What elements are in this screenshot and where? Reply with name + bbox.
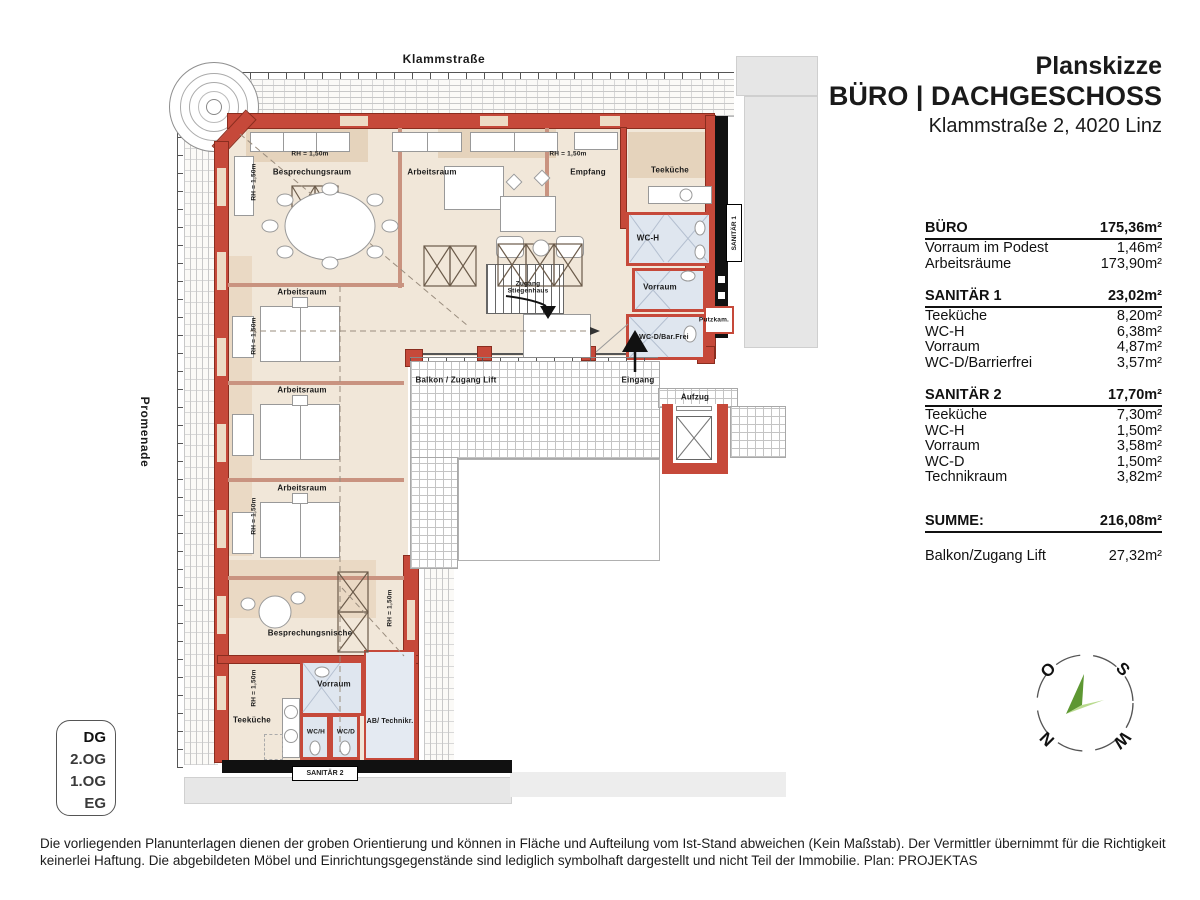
room-label-arbeitsraum-2: Arbeitsraum — [277, 385, 326, 394]
neighbor-building-right — [744, 96, 818, 348]
room-ab-technik — [364, 650, 416, 760]
desk-room3 — [260, 502, 340, 558]
area-row-label: SANITÄR 1 — [925, 289, 1002, 306]
window-left-4 — [217, 424, 226, 462]
area-table-row: WC-D 1,50m² — [925, 455, 1162, 471]
area-table-row: Arbeitsräume 173,90m² — [925, 257, 1162, 273]
area-row-value: 1,50m² — [1117, 424, 1162, 440]
sidewalk-bottom-right — [510, 772, 786, 797]
area-row-value: 8,20m² — [1117, 309, 1162, 325]
kitchen-counter-1 — [648, 186, 712, 204]
cabinet-row-3 — [470, 132, 558, 152]
window-left-7 — [217, 676, 226, 710]
area-row-label: WC-H — [925, 325, 964, 341]
page: SANITÄR 1 SANITÄR 2 — [0, 0, 1200, 900]
floor-selector-item[interactable]: 2.OG — [57, 749, 115, 771]
compass-letter-n: N — [1036, 728, 1058, 750]
counter-dashed — [264, 734, 283, 760]
page-subtitle: BÜRO | DACHGESCHOSS — [829, 81, 1162, 112]
floor-selector: DG 2.OG 1.OG EG — [56, 720, 116, 816]
disclaimer-line-1: Die vorliegenden Planunterlagen dienen d… — [40, 835, 1170, 852]
party-wall-bottom — [222, 760, 512, 773]
room-label-wch-2: WC/H — [307, 728, 325, 735]
area-row-label: Vorraum im Podest — [925, 241, 1048, 257]
area-table-row: SUMME: 216,08m² — [925, 514, 1162, 533]
area-row-value: 7,30m² — [1117, 408, 1162, 424]
area-row-label: WC-D — [925, 455, 964, 471]
partition-left-2 — [228, 381, 404, 385]
room-label-wcd-2: WC/D — [337, 728, 355, 735]
area-row-label: SUMME: — [925, 514, 984, 531]
room-wcd-2 — [330, 714, 360, 760]
floor-label: EG — [84, 795, 106, 812]
rh-label-left-3: RH = 1,50m — [250, 497, 257, 534]
room-label-teekueche-1: Teeküche — [651, 165, 689, 174]
desk-room2 — [260, 404, 340, 460]
site-boundary-left — [177, 120, 183, 768]
sanitaer2-tag: SANITÄR 2 — [292, 766, 358, 781]
podest-vorraum — [523, 314, 591, 358]
sofa-2 — [556, 236, 584, 258]
site-boundary-top — [196, 72, 734, 79]
window-top-2 — [480, 116, 508, 126]
room-label-besprechungsnische: Besprechungsnische — [268, 628, 353, 637]
promenade-label: Promenade — [137, 397, 151, 468]
cabinet-row-4 — [574, 132, 618, 150]
room-label-arbeitsraum-1: Arbeitsraum — [277, 287, 326, 296]
area-table-row: Vorraum 4,87m² — [925, 340, 1162, 356]
disclaimer-line-2: keinerlei Haftung. Die abgebildeten Möbe… — [40, 852, 1170, 869]
room-label-vorraum-2: Vorraum — [317, 679, 351, 688]
page-title: Planskizze — [829, 52, 1162, 81]
window-left-3 — [217, 338, 226, 376]
desk-room1 — [260, 306, 340, 362]
area-row-label: Arbeitsräume — [925, 257, 1011, 273]
room-label-vorraum-1: Vorraum — [643, 282, 677, 291]
room-label-arbeitsraum-top: Arbeitsraum — [407, 167, 456, 176]
area-row-value: 1,50m² — [1117, 455, 1162, 471]
cabinet-row-2 — [392, 132, 462, 152]
label-aufzug: Aufzug — [681, 392, 709, 401]
area-table-row: Vorraum im Podest 1,46m² — [925, 241, 1162, 257]
page-address: Klammstraße 2, 4020 Linz — [829, 115, 1162, 138]
floor-selector-item[interactable]: EG — [57, 793, 115, 815]
window-top-3 — [600, 116, 620, 126]
area-row-value: 175,36m² — [1100, 221, 1162, 238]
window-left-5 — [217, 510, 226, 548]
appliance-column — [282, 698, 300, 758]
title-block: Planskizze BÜRO | DACHGESCHOSS Klammstra… — [829, 52, 1162, 138]
cabinet-row-1 — [250, 132, 350, 152]
area-row-label: Vorraum — [925, 340, 980, 356]
room-label-wcd-barrierefrei: WC-D/Bar.Frei — [639, 334, 689, 342]
area-row-value: 17,70m² — [1108, 388, 1162, 405]
area-table-row: WC-H 6,38m² — [925, 325, 1162, 341]
sanitaer2-tag-text: SANITÄR 2 — [307, 770, 344, 777]
room-label-besprechungsraum: Besprechungsraum — [273, 167, 351, 176]
window-top-1 — [340, 116, 368, 126]
disclaimer: Die vorliegenden Planunterlagen dienen d… — [40, 835, 1170, 869]
balcony-side — [410, 457, 458, 569]
sidewalk-top — [196, 79, 734, 117]
area-row-label: Teeküche — [925, 309, 987, 325]
partition-left-3 — [228, 478, 404, 482]
area-table-row: WC-H 1,50m² — [925, 424, 1162, 440]
area-table-row: SANITÄR 2 17,70m² — [925, 388, 1162, 407]
area-table-row: Teeküche 7,30m² — [925, 408, 1162, 424]
area-table-row: Teeküche 8,20m² — [925, 309, 1162, 325]
area-table-row — [925, 371, 1162, 388]
window-right-bw — [407, 600, 415, 640]
label-balkon: Balkon / Zugang Lift — [416, 375, 497, 384]
area-row-label: WC-D/Barrierfrei — [925, 356, 1032, 372]
turret-center — [206, 99, 222, 115]
area-row-label: Teeküche — [925, 408, 987, 424]
area-row-value: 23,02m² — [1108, 289, 1162, 306]
area-row-value: 1,46m² — [1117, 241, 1162, 257]
sidewalk-right-wing — [424, 566, 454, 766]
area-table-row: Vorraum 3,58m² — [925, 439, 1162, 455]
room-label-ab-technik: AB/ Technikr. — [367, 718, 414, 726]
desk-empfang — [500, 196, 556, 232]
sidewalk-bottom — [184, 777, 512, 804]
floor-selector-item[interactable]: 1.OG — [57, 771, 115, 793]
compass-letter-o: O — [1037, 659, 1060, 682]
floor-label: DG — [84, 729, 107, 746]
wall-top — [228, 114, 714, 128]
room-wch-2 — [300, 714, 330, 760]
room-label-arbeitsraum-3: Arbeitsraum — [277, 483, 326, 492]
area-table-row: Balkon/Zugang Lift 27,32m² — [925, 549, 1162, 565]
room-label-teekueche-2: Teeküche — [233, 715, 271, 724]
room-label-wch-1: WC-H — [637, 233, 660, 242]
partition-left-1 — [228, 283, 404, 287]
area-table-row — [925, 486, 1162, 514]
partition-bespr-arbeits — [398, 128, 402, 288]
area-table-row: WC-D/Barrierfrei 3,57m² — [925, 356, 1162, 372]
sofa-1 — [496, 236, 524, 258]
partition-left-4 — [228, 576, 404, 580]
window-left-6 — [217, 596, 226, 634]
neighbor-roof — [458, 459, 660, 561]
area-row-value: 3,58m² — [1117, 439, 1162, 455]
floor-label: 1.OG — [70, 773, 106, 790]
rh-label-bottom-wing: RH = 1,50m — [386, 589, 393, 626]
electric-panel-1 — [718, 276, 725, 283]
area-table-row: Technikraum 3,82m² — [925, 470, 1162, 486]
lift-cab — [676, 416, 712, 460]
area-row-value: 216,08m² — [1100, 514, 1162, 531]
window-left-1 — [217, 168, 226, 206]
chair-room2 — [292, 395, 308, 406]
sanitaer1-tag-text: SANITÄR 1 — [731, 216, 738, 250]
compass: O S N W — [1022, 640, 1148, 766]
area-table-row: SANITÄR 1 23,02m² — [925, 289, 1162, 308]
area-row-label: WC-H — [925, 424, 964, 440]
sanitaer1-tag: SANITÄR 1 — [726, 204, 742, 262]
rh-label-left-1: RH = 1,50m — [250, 163, 257, 200]
floor-label: 2.OG — [70, 751, 106, 768]
area-row-label: BÜRO — [925, 221, 968, 238]
chair-room3 — [292, 493, 308, 504]
label-zugang-stiegenhaus: Zugang Stiegenhaus — [508, 281, 549, 296]
area-table-row — [925, 272, 1162, 289]
terrace-right-of-lift — [730, 406, 786, 458]
area-row-label: Balkon/Zugang Lift — [925, 549, 1046, 565]
compass-letter-w: W — [1109, 727, 1134, 752]
neighbor-building-top — [736, 56, 818, 96]
area-row-label: SANITÄR 2 — [925, 388, 1002, 405]
lift-door — [676, 406, 712, 411]
rh-zone-left-wall — [228, 256, 252, 556]
rh-label-left-4: RH = 1,50m — [250, 669, 257, 706]
area-table-row: BÜRO 175,36m² — [925, 221, 1162, 240]
street-label: Klammstraße — [403, 53, 486, 67]
compass-letter-s: S — [1112, 658, 1133, 679]
area-row-value: 4,87m² — [1117, 340, 1162, 356]
sidewalk-left — [184, 120, 218, 765]
electric-panel-2 — [718, 292, 725, 299]
area-row-value: 3,82m² — [1117, 470, 1162, 486]
area-row-value: 3,57m² — [1117, 356, 1162, 372]
room-label-empfang: Empfang — [570, 167, 606, 176]
room-label-putzkam: Putzkam. — [699, 316, 729, 323]
area-row-label: Vorraum — [925, 439, 980, 455]
label-eingang: Eingang — [622, 375, 655, 384]
rh-label-left-2: RH = 1,50m — [250, 317, 257, 354]
area-row-value: 27,32m² — [1109, 549, 1162, 565]
floor-selector-item[interactable]: DG — [57, 727, 115, 749]
rh-label-top2: RH = 1,50m — [549, 150, 586, 157]
rh-zone-nook — [228, 560, 376, 618]
chair-room1 — [292, 297, 308, 308]
area-table: BÜRO 175,36m² Vorraum im Podest 1,46m² A… — [925, 221, 1162, 564]
area-row-label: Technikraum — [925, 470, 1007, 486]
rh-label-top1: RH = 1,50m — [291, 150, 328, 157]
area-row-value: 173,90m² — [1101, 257, 1162, 273]
area-table-row — [925, 534, 1162, 549]
area-row-value: 6,38m² — [1117, 325, 1162, 341]
cabinet-room2 — [232, 414, 254, 456]
window-left-2 — [217, 252, 226, 290]
